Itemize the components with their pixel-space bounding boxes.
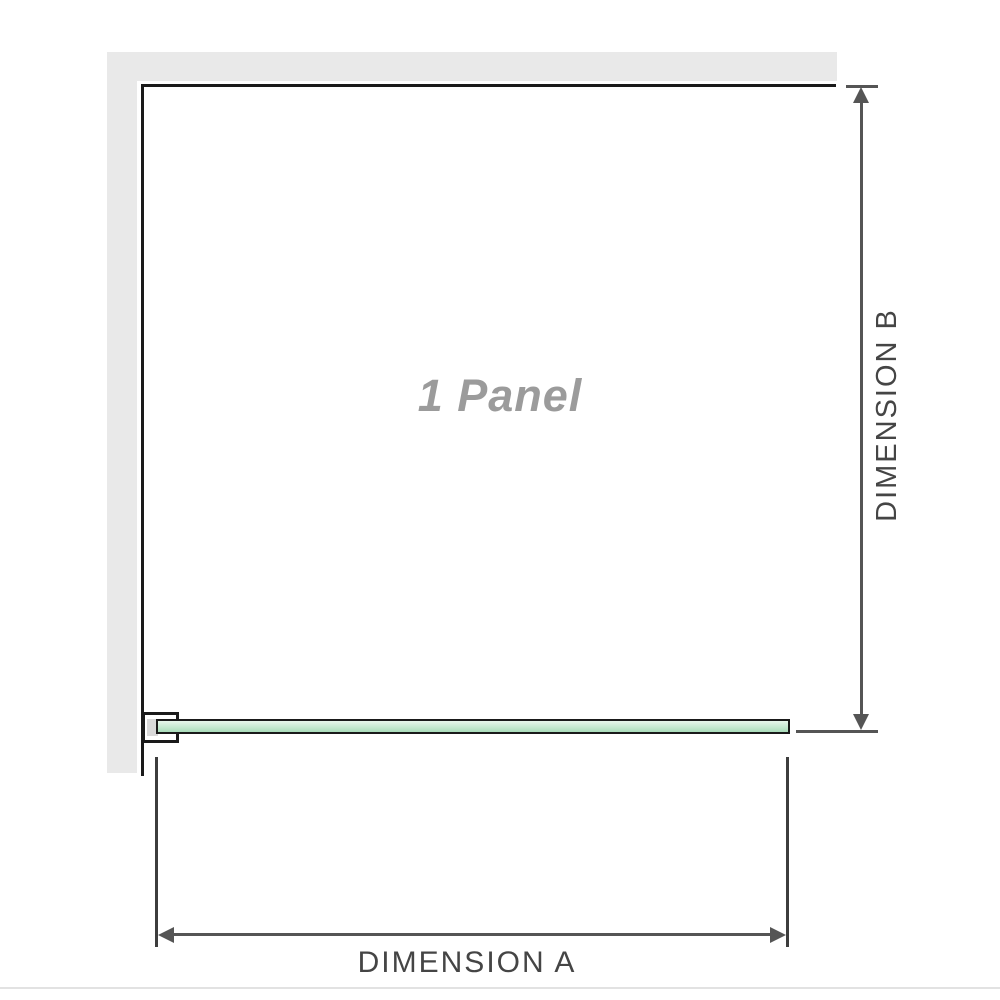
dimension-a-label: DIMENSION A: [317, 946, 617, 980]
dimension-b-bottom-tick: [796, 730, 878, 733]
dimension-diagram: 1 Panel DIMENSION B DIMENSION A: [0, 0, 1000, 1000]
wall-top-bar: [107, 52, 837, 81]
dimension-a-left-tick: [155, 757, 158, 947]
bottom-divider-line: [0, 987, 1000, 989]
panel-count-label: 1 Panel: [340, 370, 660, 422]
arrow-left-icon: [158, 927, 174, 943]
glass-panel-bar: [156, 719, 790, 734]
dimension-b-label: DIMENSION B: [787, 315, 987, 515]
arrow-up-icon: [853, 87, 869, 103]
arrow-down-icon: [853, 714, 869, 730]
panel-frame-top-line: [141, 84, 836, 87]
dimension-a-right-tick: [786, 757, 789, 947]
wall-left-bar: [107, 52, 137, 773]
panel-frame-left-line: [141, 84, 144, 776]
arrow-right-icon: [770, 927, 786, 943]
dimension-a-line: [168, 933, 778, 936]
